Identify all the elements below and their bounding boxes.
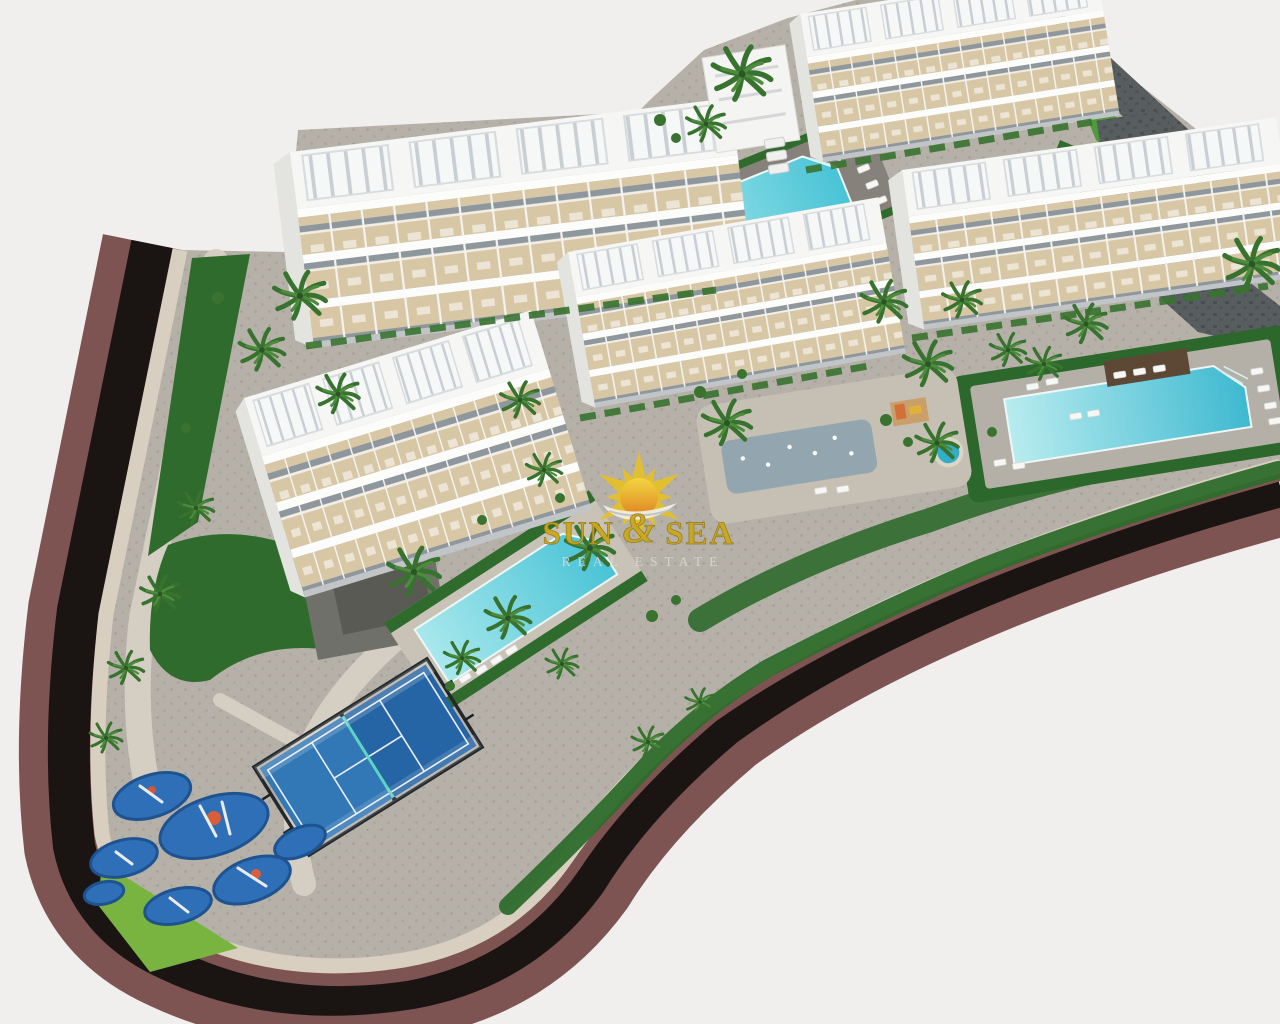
brand-right: SEA — [665, 516, 735, 552]
brand-ampersand: & — [623, 506, 658, 552]
brand-left: SUN — [543, 516, 615, 552]
brand-tagline: REAL ESTATE — [562, 554, 725, 569]
aerial-render: SUN&SEA REAL ESTATE — [0, 0, 1280, 1024]
stair-tower — [702, 45, 800, 153]
render-canvas: SUN&SEA REAL ESTATE — [0, 0, 1280, 1024]
